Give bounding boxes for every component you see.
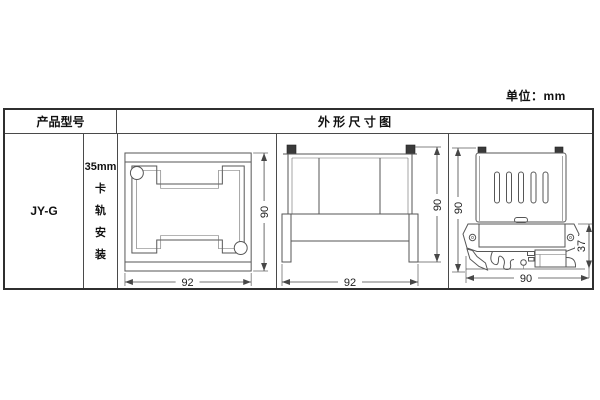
unit-label: 单位：mm xyxy=(506,87,586,104)
mounting-char: 轨 xyxy=(95,200,106,222)
screw-hole xyxy=(130,167,143,180)
cell-rail-view-drawing: 90 37 90 xyxy=(449,134,592,288)
rail-height-dimension: 90 xyxy=(452,197,465,219)
dimension-spec-table: 产品型号 外 形 尺 寸 图 JY-G 35mm 卡 轨 安 装 xyxy=(3,108,594,290)
front-height-dimension: 90 xyxy=(258,201,271,223)
page: { "page": { "unit_label": "单位：mm" }, "ta… xyxy=(0,0,600,400)
front-view-drawing: 90 92 xyxy=(118,134,276,288)
relay-cover xyxy=(476,153,566,222)
side-width-dimension: 92 xyxy=(344,277,356,288)
terminal-block xyxy=(555,147,563,153)
cell-side-view-drawing: 92 90 xyxy=(277,134,449,288)
cell-front-view-drawing: 90 92 xyxy=(118,134,277,288)
base-left-tab xyxy=(282,214,291,262)
svg-text:90: 90 xyxy=(453,202,465,214)
svg-text:37: 37 xyxy=(576,240,588,252)
clip-screw xyxy=(529,258,535,262)
mounting-size: 35mm xyxy=(85,156,117,178)
rail-depth-dimension: 37 xyxy=(575,236,588,256)
rail-clip-spring xyxy=(491,252,514,270)
rail-width-dimension: 90 xyxy=(520,273,532,285)
terminal-block xyxy=(406,145,415,154)
table-body-row: JY-G 35mm 卡 轨 安 装 xyxy=(5,134,592,288)
rail-latch xyxy=(535,250,566,267)
side-height-dimension: 90 xyxy=(431,194,444,216)
side-view-drawing: 92 90 xyxy=(277,134,448,288)
front-width-dimension: 92 xyxy=(181,277,193,288)
mounting-char: 装 xyxy=(95,244,106,266)
clip-pin xyxy=(521,260,527,266)
cell-mounting-type: 35mm 卡 轨 安 装 xyxy=(84,134,118,288)
screw-hole xyxy=(234,242,247,255)
table-header-row: 产品型号 外 形 尺 寸 图 xyxy=(5,110,592,134)
svg-text:90: 90 xyxy=(259,206,271,218)
header-outline-drawing: 外 形 尺 寸 图 xyxy=(117,110,592,133)
mounting-char: 安 xyxy=(95,222,106,244)
bracket-left-claw xyxy=(467,249,488,270)
socket-base xyxy=(282,214,418,241)
clip-screw xyxy=(528,252,535,256)
latch-foot xyxy=(566,257,576,267)
rail-view-drawing: 90 37 90 xyxy=(449,134,592,288)
svg-text:90: 90 xyxy=(432,199,444,211)
terminal-block xyxy=(287,145,296,154)
bracket-screw-hole xyxy=(567,234,573,240)
base-right-tab xyxy=(409,214,418,262)
cell-model-name: JY-G xyxy=(5,134,84,288)
bracket-screw-hole xyxy=(469,234,475,240)
header-product-model: 产品型号 xyxy=(5,110,117,133)
terminal-block xyxy=(478,147,486,153)
mounting-char: 卡 xyxy=(95,178,106,200)
